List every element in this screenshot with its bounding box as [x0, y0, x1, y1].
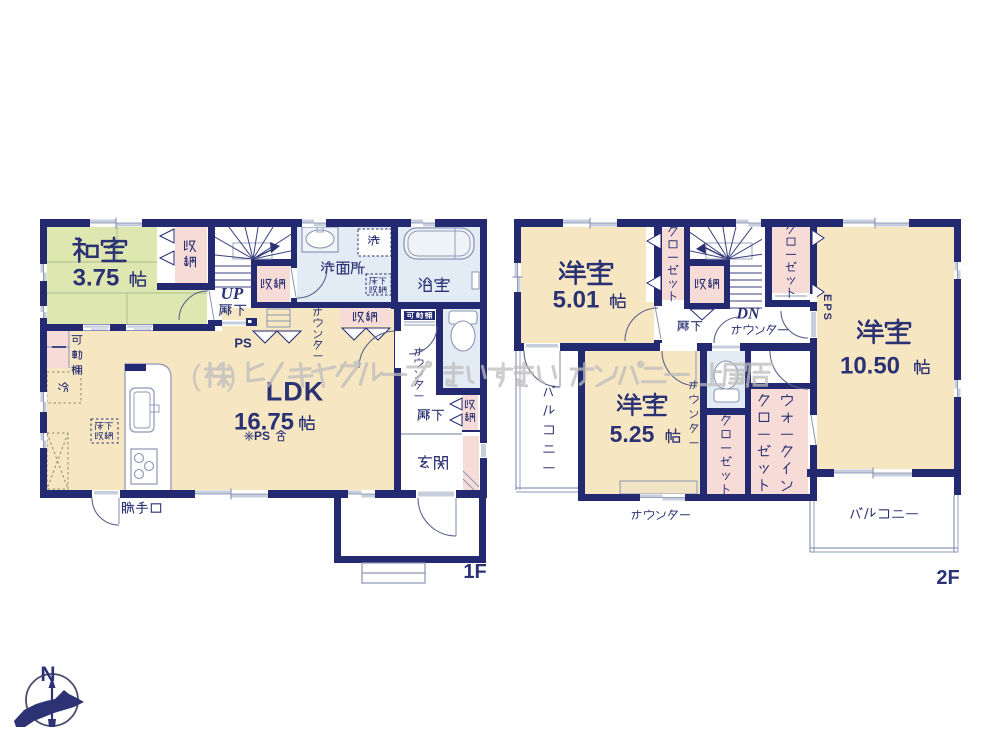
svg-text:): ): [227, 360, 237, 393]
svg-text:PS: PS: [234, 336, 252, 351]
svg-text:2F: 2F: [936, 567, 959, 589]
svg-text:(: (: [191, 360, 201, 393]
svg-text:1F: 1F: [463, 561, 486, 583]
svg-text:5.01: 5.01: [553, 286, 600, 313]
svg-text:PS: PS: [254, 429, 270, 443]
svg-text:10.50: 10.50: [840, 352, 900, 379]
svg-text:3.75: 3.75: [73, 264, 120, 291]
svg-text:EPS: EPS: [821, 294, 833, 322]
svg-text:DN: DN: [735, 306, 761, 323]
svg-text:LDK: LDK: [266, 376, 325, 406]
svg-text:UP: UP: [221, 284, 244, 303]
svg-text:5.25: 5.25: [610, 421, 655, 447]
